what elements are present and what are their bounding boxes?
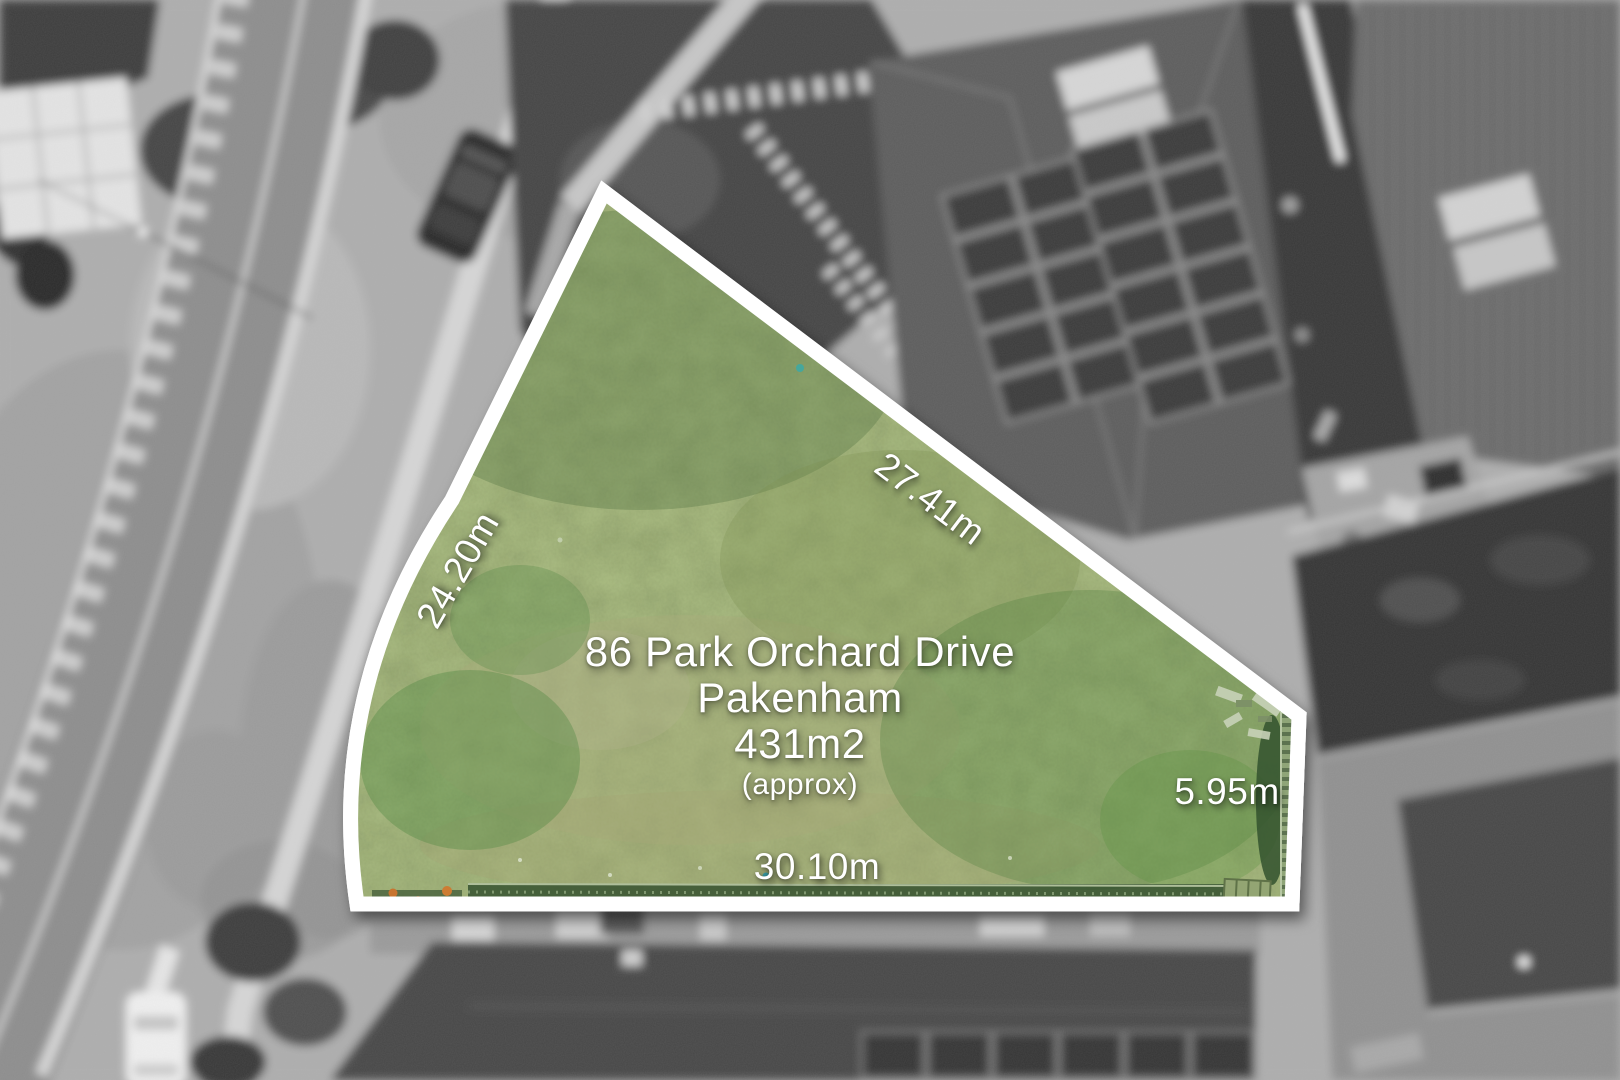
aerial-photo [0, 0, 1620, 1080]
lot-annotation: 86 Park Orchard Drive Pakenham 431m2 (ap… [585, 629, 1015, 803]
address-line-1: 86 Park Orchard Drive [585, 629, 1015, 675]
area-label: 431m2 [585, 721, 1015, 767]
area-qualifier: (approx) [585, 767, 1015, 803]
listing-aerial-image: 24.20m 27.41m 5.95m 30.10m 86 Park Orcha… [0, 0, 1620, 1080]
address-line-2: Pakenham [585, 675, 1015, 721]
dimension-label-bottom: 30.10m [754, 846, 880, 888]
dimension-label-right: 5.95m [1174, 771, 1279, 813]
